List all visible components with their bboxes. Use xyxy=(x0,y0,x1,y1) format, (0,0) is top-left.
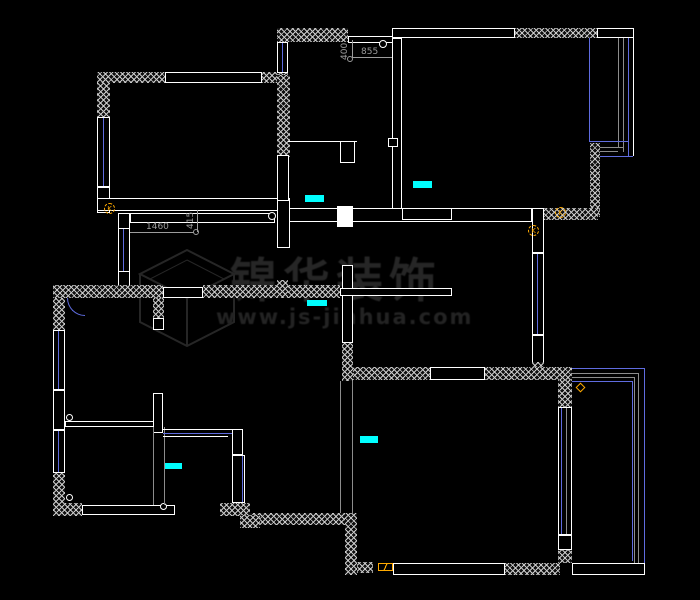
wall-outline xyxy=(118,271,130,286)
door-swing-arc xyxy=(67,298,85,316)
wall-pier xyxy=(340,141,355,163)
window-frame xyxy=(53,330,65,390)
diamond-marker xyxy=(576,383,586,393)
door-hinge-circle xyxy=(66,414,73,421)
exterior-wall-hatch xyxy=(53,503,82,516)
window-frame xyxy=(97,117,110,187)
window-frame xyxy=(165,72,262,83)
dimension-label-855: 855 xyxy=(361,48,378,57)
dimension-endpoint-circle xyxy=(347,56,353,62)
window-frame xyxy=(232,455,245,503)
wall-outline xyxy=(402,208,452,220)
balcony-window-line xyxy=(572,368,645,369)
exterior-wall-hatch xyxy=(277,28,348,42)
wall-outline xyxy=(65,421,155,427)
cyan-marker xyxy=(165,463,182,469)
balcony-floor-edge xyxy=(572,563,645,575)
interior-wall-hatch xyxy=(288,285,340,298)
dimension-label-415: 415 xyxy=(187,212,196,229)
cyan-marker xyxy=(305,195,324,202)
wall-outline xyxy=(532,335,544,363)
window-frame xyxy=(53,430,65,473)
door-opening xyxy=(163,287,203,298)
cyan-marker xyxy=(307,300,327,306)
window-glass-line xyxy=(163,433,235,434)
wall-outline xyxy=(342,265,353,343)
wall-opening xyxy=(430,367,485,380)
balcony-window-line xyxy=(572,377,634,378)
cyan-marker xyxy=(360,436,378,443)
balcony-window-line xyxy=(644,368,645,564)
dimension-line xyxy=(352,40,353,58)
interior-wall-hatch xyxy=(485,367,572,380)
exterior-wall-hatch xyxy=(97,83,110,117)
k-switch-marker: K xyxy=(528,225,539,236)
exterior-wall-hatch xyxy=(53,298,65,330)
k-switch-marker: K xyxy=(555,207,566,218)
wall-outline xyxy=(277,155,289,201)
dimension-line xyxy=(352,57,392,58)
sliding-door-frame xyxy=(558,407,572,535)
door-jamb-block xyxy=(337,206,353,227)
balcony-window-line xyxy=(638,373,639,563)
threshold-marker xyxy=(378,563,393,571)
k-switch-marker: K xyxy=(104,203,115,214)
wall-pilaster xyxy=(388,138,398,147)
dimension-line xyxy=(197,210,198,232)
exterior-wall-hatch xyxy=(590,143,600,217)
wall-line xyxy=(163,429,237,430)
wall-outline xyxy=(340,288,452,296)
exterior-wall-hatch xyxy=(515,28,597,38)
interior-wall-hatch xyxy=(53,285,163,298)
wall-outline xyxy=(277,200,290,248)
wall-outline xyxy=(232,429,243,455)
cyan-marker xyxy=(413,181,432,188)
balcony-window-line xyxy=(572,381,633,382)
bay-window-glass-line xyxy=(589,38,590,142)
exterior-wall-hatch xyxy=(558,380,572,407)
wall-outline xyxy=(53,390,65,430)
interior-wall-hatch xyxy=(277,75,290,157)
dimension-endpoint-circle xyxy=(193,229,199,235)
wall-outline xyxy=(392,38,402,210)
bay-window-glass-line xyxy=(618,38,619,148)
interior-wall-hatch xyxy=(153,298,164,318)
wall-outline xyxy=(118,213,130,229)
bay-window-glass-line xyxy=(628,38,629,156)
wall-line xyxy=(163,436,228,437)
window-frame xyxy=(277,42,288,73)
exterior-wall-hatch xyxy=(97,72,165,83)
dimension-label-1460: 1460 xyxy=(146,223,169,232)
wall-outline xyxy=(558,535,572,550)
bay-window-glass-line xyxy=(589,141,629,142)
bay-window-outer-line xyxy=(633,28,634,156)
exterior-wall-hatch xyxy=(505,563,560,575)
interior-wall-hatch xyxy=(240,515,260,528)
dimension-line xyxy=(130,232,196,233)
partition-wall xyxy=(153,427,165,505)
bay-window-glass-line xyxy=(623,38,624,152)
bay-window-lintel xyxy=(597,28,634,38)
balcony-window-line xyxy=(634,377,635,563)
window-frame xyxy=(393,563,505,575)
floor-plan-canvas: 锦华装饰 www.js-jinhua.com 1460 415 400 855 xyxy=(0,0,700,600)
wall-outline xyxy=(97,198,290,211)
interior-wall-hatch xyxy=(357,562,373,573)
door-hinge-circle xyxy=(268,212,276,220)
window-frame xyxy=(532,253,544,335)
interior-wall-hatch xyxy=(345,513,357,575)
door-hinge-circle xyxy=(66,494,73,501)
window-frame xyxy=(118,228,130,272)
door-hinge-circle xyxy=(379,40,387,48)
wall-outline xyxy=(153,318,164,330)
interior-wall-hatch xyxy=(203,285,277,298)
interior-wall-hatch xyxy=(277,280,288,298)
wall-outline xyxy=(392,28,515,38)
interior-wall-hatch xyxy=(342,343,353,381)
interior-wall-hatch xyxy=(353,367,430,380)
partition-wall xyxy=(340,381,353,513)
balcony-window-line xyxy=(572,373,638,374)
balcony-window-line xyxy=(632,381,633,561)
exterior-wall-hatch xyxy=(558,550,572,563)
